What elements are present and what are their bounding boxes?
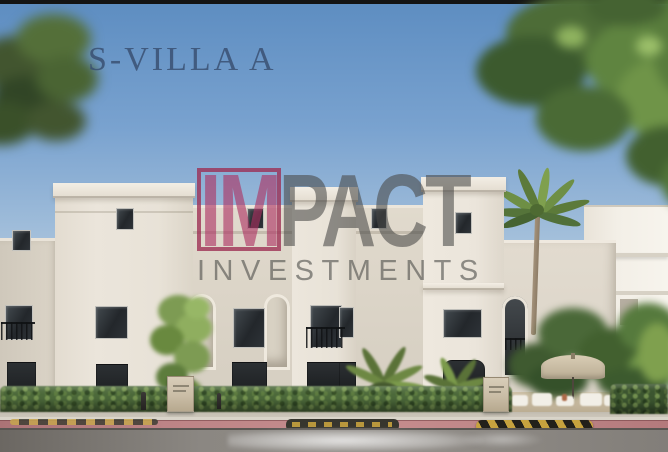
patio-chair xyxy=(532,393,552,406)
road-marking xyxy=(228,429,483,452)
sign-text-line xyxy=(173,390,186,392)
window xyxy=(443,309,482,338)
sign-text-line xyxy=(489,391,501,393)
foliage-blob xyxy=(16,14,91,64)
window xyxy=(95,306,128,339)
watermark-subtitle: INVESTMENTS xyxy=(197,256,486,286)
watermark-brand-im: IM xyxy=(200,153,279,268)
umbrella-finial xyxy=(571,353,575,359)
road-marking xyxy=(460,431,545,448)
foliage-blob xyxy=(536,86,631,151)
patio-chair xyxy=(512,395,528,406)
entrance-sign xyxy=(483,377,509,412)
architectural-render: IMPACT INVESTMENTS S-VILLA A xyxy=(0,0,668,452)
left-tower-cornice xyxy=(53,183,195,198)
foreground-tree-left xyxy=(0,6,116,166)
foliage-blob xyxy=(636,36,662,56)
watermark-brand-pact: PACT xyxy=(279,153,469,268)
patio-chair xyxy=(580,393,602,406)
foliage-blob xyxy=(638,323,668,383)
foreground-tree-right xyxy=(436,0,668,236)
foliage-blob xyxy=(26,101,86,141)
sign-text-line xyxy=(173,385,189,387)
outdoor-furniture xyxy=(504,390,624,412)
juliet-railing xyxy=(1,322,35,340)
hedge-row xyxy=(0,386,512,412)
person-figure xyxy=(562,394,567,401)
upper-window xyxy=(12,230,31,251)
curbstones xyxy=(10,419,158,425)
watermark-brand: IMPACT xyxy=(200,159,469,262)
juliet-railing xyxy=(306,327,345,348)
foliage-blob xyxy=(556,26,586,48)
entrance-sign xyxy=(167,376,194,412)
speed-bump-markings xyxy=(292,422,392,427)
foliage-blob xyxy=(184,297,210,319)
upper-window xyxy=(116,208,134,230)
hedge-row xyxy=(610,384,668,414)
bollard xyxy=(141,392,146,410)
portico-arch xyxy=(264,294,290,370)
page-title: S-VILLA A xyxy=(88,40,277,80)
sign-text-line xyxy=(489,386,504,388)
bollard xyxy=(217,393,221,409)
window xyxy=(233,308,265,348)
